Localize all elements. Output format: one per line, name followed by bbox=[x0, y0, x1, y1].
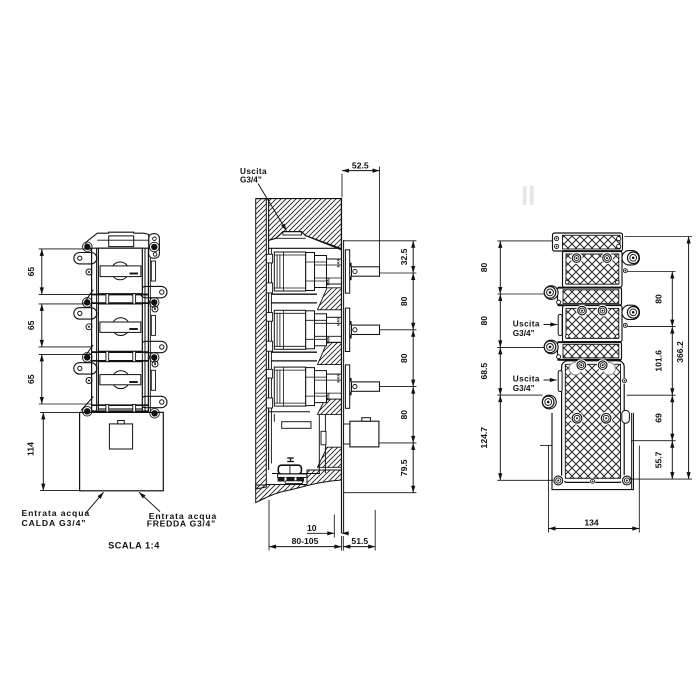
svg-text:80: 80 bbox=[479, 316, 489, 326]
svg-text:68.5: 68.5 bbox=[479, 363, 489, 380]
svg-text:CALDA G3/4”: CALDA G3/4” bbox=[22, 518, 87, 528]
svg-text:65: 65 bbox=[26, 320, 36, 330]
svg-text:G3/4”: G3/4” bbox=[513, 329, 535, 338]
svg-text:Uscita: Uscita bbox=[513, 375, 540, 384]
svg-text:MAX: MAX bbox=[337, 317, 341, 326]
svg-text:80: 80 bbox=[654, 294, 664, 304]
svg-text:SCALA 1:4: SCALA 1:4 bbox=[108, 540, 160, 550]
svg-text:114: 114 bbox=[25, 442, 35, 456]
svg-text:55.7: 55.7 bbox=[654, 451, 664, 468]
svg-text:80: 80 bbox=[479, 263, 489, 273]
svg-text:51.5: 51.5 bbox=[351, 536, 368, 546]
svg-text:MIN: MIN bbox=[327, 278, 331, 285]
svg-text:101.6: 101.6 bbox=[654, 350, 664, 372]
svg-text:Entrata acqua: Entrata acqua bbox=[22, 508, 91, 518]
svg-text:80: 80 bbox=[399, 296, 409, 306]
svg-text:69: 69 bbox=[654, 413, 664, 423]
svg-text:65: 65 bbox=[26, 267, 36, 277]
svg-text:10: 10 bbox=[307, 523, 317, 533]
svg-text:G3/4”: G3/4” bbox=[513, 384, 535, 393]
svg-text:MAX: MAX bbox=[337, 374, 341, 383]
svg-text:366.2: 366.2 bbox=[675, 341, 685, 363]
svg-text:65: 65 bbox=[26, 374, 36, 384]
svg-text:80: 80 bbox=[399, 410, 409, 420]
svg-text:80-105: 80-105 bbox=[292, 536, 319, 546]
svg-text:124.7: 124.7 bbox=[479, 427, 489, 449]
svg-text:134: 134 bbox=[584, 518, 599, 528]
svg-text:52.5: 52.5 bbox=[352, 161, 369, 171]
svg-text:G3/4”: G3/4” bbox=[240, 175, 262, 184]
svg-text:MIN: MIN bbox=[327, 393, 331, 400]
svg-text:MIN: MIN bbox=[327, 336, 331, 343]
svg-text:MAX: MAX bbox=[337, 259, 341, 268]
svg-text:80: 80 bbox=[399, 353, 409, 363]
svg-text:Uscita: Uscita bbox=[513, 320, 540, 329]
svg-text:32.5: 32.5 bbox=[399, 248, 409, 265]
svg-text:79.5: 79.5 bbox=[399, 459, 409, 476]
svg-text:FREDDA G3/4”: FREDDA G3/4” bbox=[147, 519, 216, 529]
